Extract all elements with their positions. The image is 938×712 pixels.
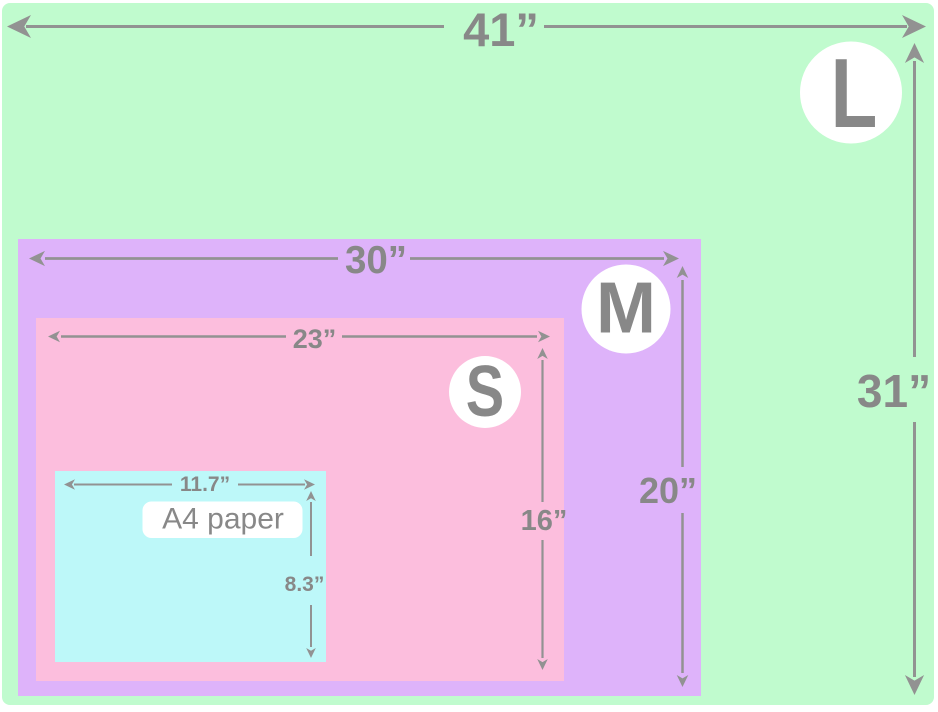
svg-text:30”: 30”	[345, 239, 407, 282]
svg-text:8.3”: 8.3”	[285, 573, 325, 596]
svg-text:11.7”: 11.7”	[180, 473, 230, 496]
svg-text:31”: 31”	[857, 365, 931, 417]
svg-text:20”: 20”	[639, 470, 697, 511]
svg-text:23”: 23”	[293, 324, 337, 354]
svg-text:S: S	[466, 351, 504, 432]
svg-text:A4 paper: A4 paper	[162, 503, 284, 536]
svg-text:41”: 41”	[463, 3, 539, 56]
svg-text:M: M	[596, 269, 656, 349]
svg-text:16”: 16”	[521, 505, 568, 537]
svg-text:L: L	[831, 38, 878, 148]
